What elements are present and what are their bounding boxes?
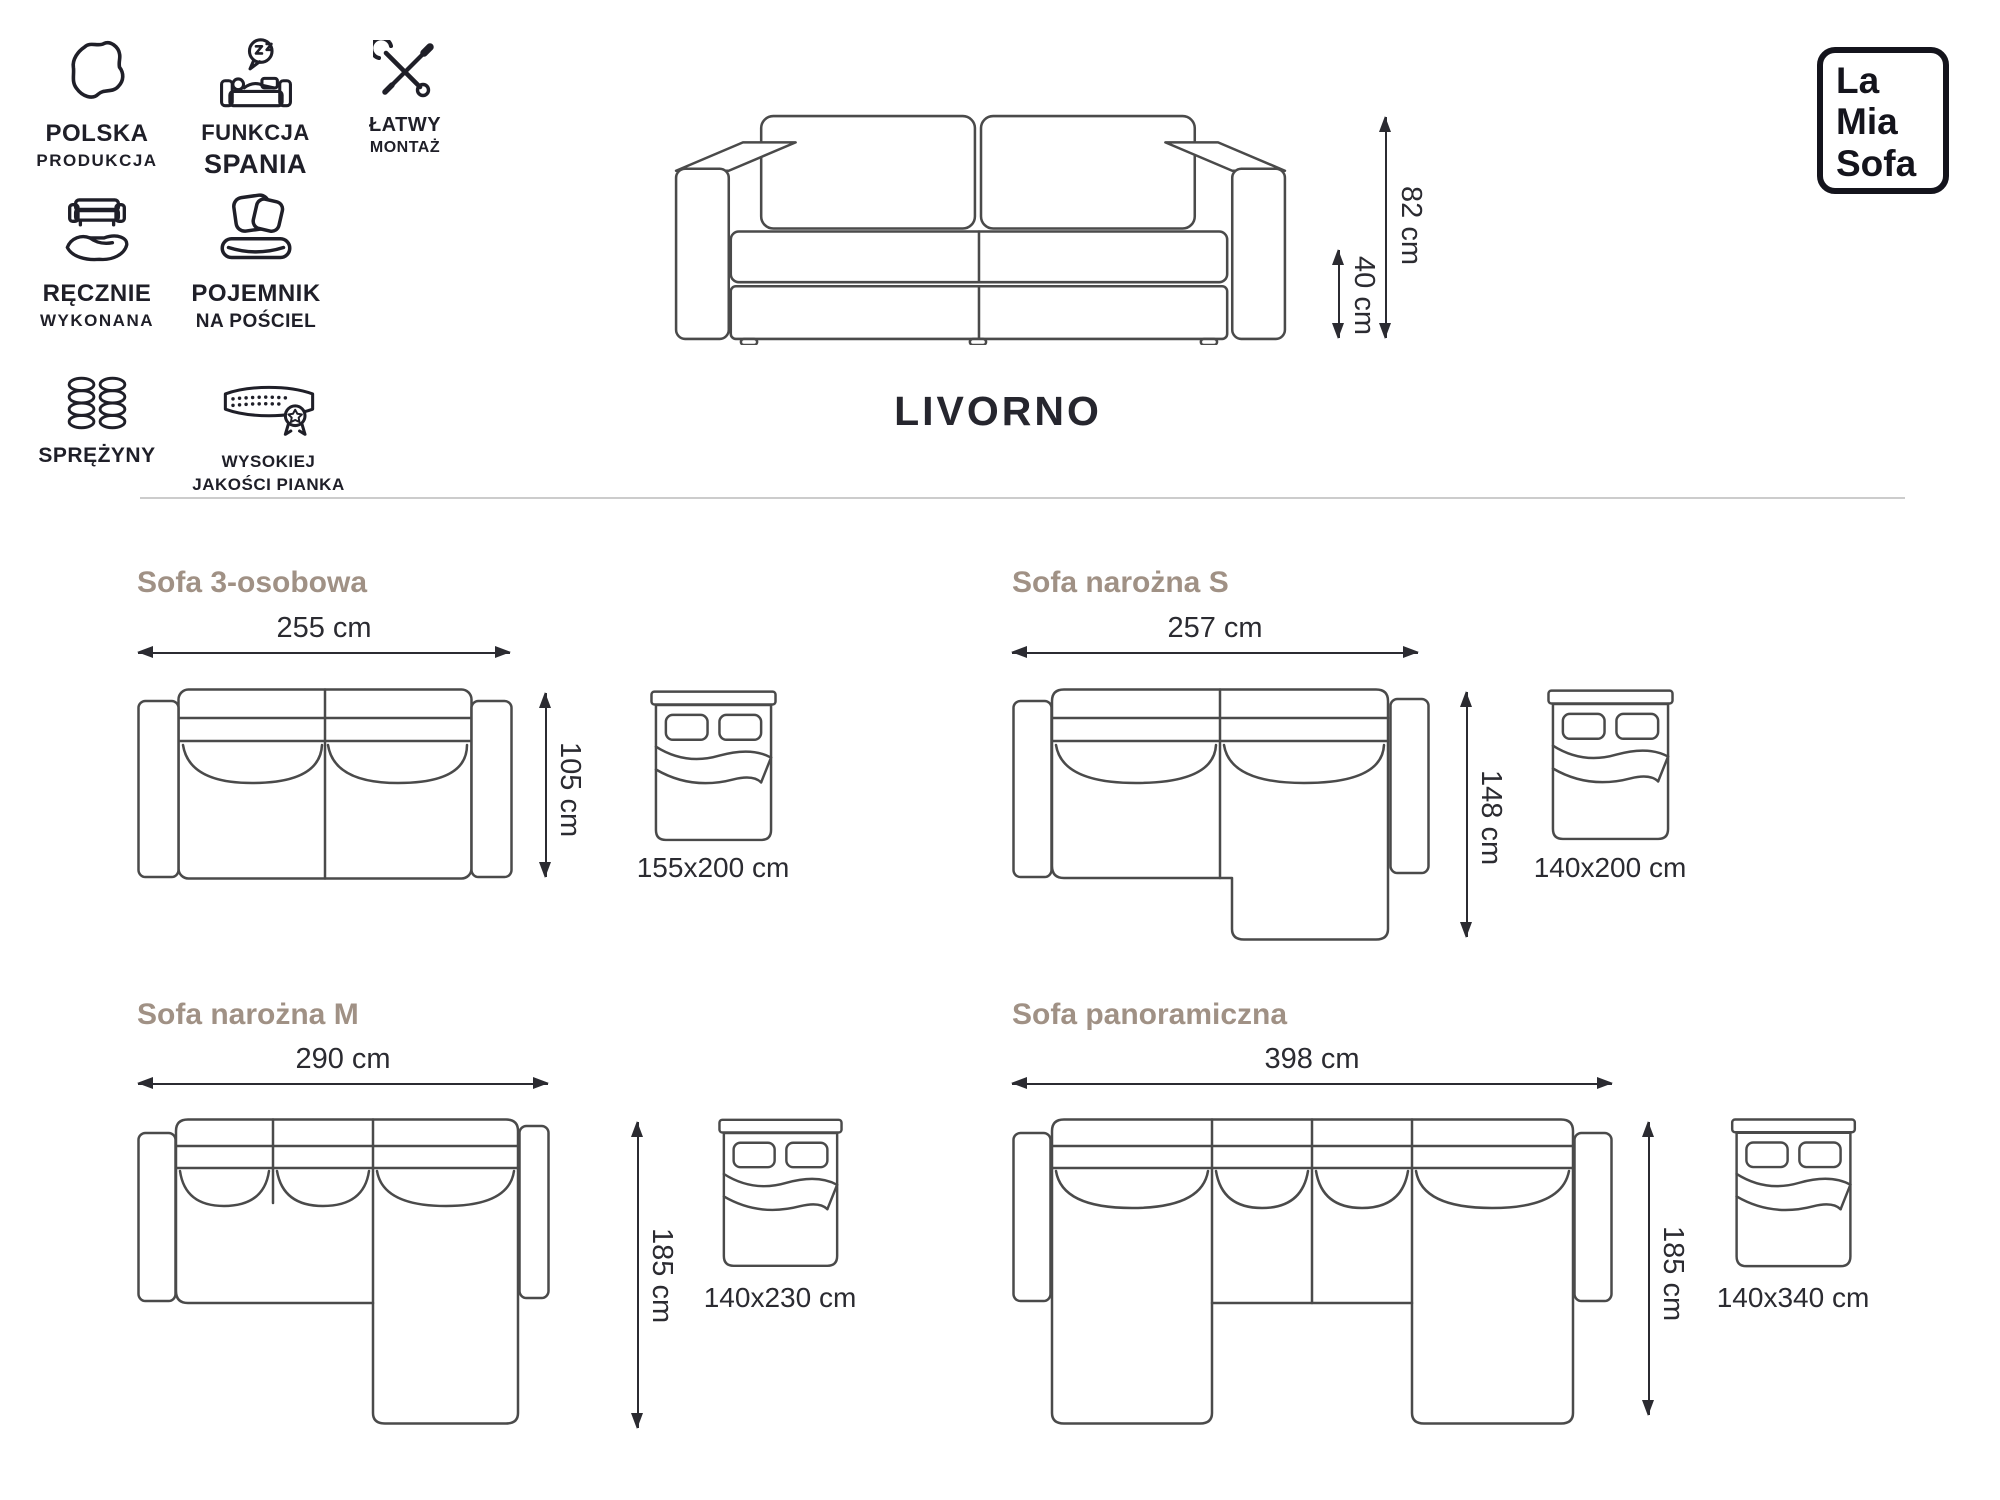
feature-title: RĘCZNIE bbox=[43, 280, 152, 308]
variant-4-name: Sofa panoramiczna bbox=[1012, 998, 1287, 1032]
feature-title: SPRĘŻYNY bbox=[38, 444, 155, 468]
variant-1-name: Sofa 3-osobowa bbox=[137, 566, 367, 600]
variant-4-bed-size: 140x340 cm bbox=[1717, 1282, 1870, 1314]
variant-1-width-arrow bbox=[138, 652, 510, 654]
feature-recznie-wykonana: RĘCZNIE WYKONANA bbox=[12, 194, 182, 331]
feature-wysokiej-jakosci-pianka: WYSOKIEJ JAKOŚCI PIANKA bbox=[156, 374, 381, 495]
variant-2-width-label: 257 cm bbox=[1167, 612, 1262, 645]
feature-polska-produkcja: POLSKA PRODUKCJA bbox=[12, 38, 182, 171]
bed-icon bbox=[1547, 689, 1674, 846]
sleep-function-icon bbox=[218, 38, 294, 114]
feature-subtitle: PRODUKCJA bbox=[36, 151, 157, 171]
easy-assembly-icon bbox=[373, 40, 437, 104]
variant-3-width-arrow bbox=[138, 1083, 548, 1085]
variant-1-depth-label: 105 cm bbox=[553, 742, 586, 837]
variant-1-depth-arrow bbox=[545, 693, 547, 877]
variant-2-depth-arrow bbox=[1466, 692, 1468, 937]
brand-line-3: Sofa bbox=[1836, 143, 1943, 184]
variant-3-bed-size: 140x230 cm bbox=[704, 1282, 857, 1314]
feature-latwy-montaz: ŁATWY MONTAŻ bbox=[325, 40, 485, 157]
product-name: LIVORNO bbox=[894, 388, 1102, 435]
total-height-arrow bbox=[1385, 117, 1387, 338]
sofa-top-view-narozna-m bbox=[137, 1118, 550, 1425]
feature-subtitle: WYKONANA bbox=[40, 311, 154, 331]
variant-3-depth-arrow bbox=[637, 1122, 639, 1428]
variant-4-depth-arrow bbox=[1648, 1122, 1650, 1415]
variant-4-width-arrow bbox=[1012, 1083, 1612, 1085]
quality-foam-icon bbox=[221, 374, 317, 440]
brand-line-1: La bbox=[1836, 60, 1943, 101]
feature-subtitle: MONTAŻ bbox=[370, 138, 440, 157]
feature-subtitle: JAKOŚCI PIANKA bbox=[192, 475, 344, 495]
feature-title: ŁATWY bbox=[369, 114, 441, 137]
feature-title: POLSKA bbox=[45, 120, 148, 148]
sofa-front-view bbox=[673, 112, 1288, 345]
brand-line-2: Mia bbox=[1836, 101, 1943, 142]
sofa-top-view-panoramiczna bbox=[1012, 1118, 1613, 1425]
variant-2-depth-label: 148 cm bbox=[1474, 770, 1507, 865]
feature-funkcja-spania: FUNKCJA SPANIA bbox=[168, 38, 343, 181]
variant-2-name: Sofa narożna S bbox=[1012, 566, 1229, 600]
poland-map-icon bbox=[61, 38, 133, 110]
handmade-icon bbox=[59, 194, 135, 270]
variant-4-width-label: 398 cm bbox=[1264, 1043, 1359, 1076]
bed-icon bbox=[718, 1118, 843, 1273]
bed-icon bbox=[1730, 1118, 1857, 1273]
total-height-label: 82 cm bbox=[1394, 186, 1427, 265]
bedding-storage-icon bbox=[216, 190, 296, 270]
variant-3-width-label: 290 cm bbox=[295, 1043, 390, 1076]
variant-2-width-arrow bbox=[1012, 652, 1418, 654]
springs-icon bbox=[64, 372, 130, 434]
feature-subtitle: NA POŚCIEL bbox=[196, 311, 316, 334]
feature-subtitle: SPANIA bbox=[204, 148, 307, 180]
divider bbox=[140, 497, 1905, 499]
product-spec-sheet: POLSKA PRODUKCJA FUNKCJA SPANIA bbox=[0, 0, 2000, 1500]
variant-3-depth-label: 185 cm bbox=[645, 1228, 678, 1323]
seat-height-arrow bbox=[1338, 250, 1340, 338]
sofa-top-view-3-osobowa bbox=[137, 688, 513, 880]
variant-1-width-label: 255 cm bbox=[276, 612, 371, 645]
feature-title: FUNKCJA bbox=[201, 120, 310, 145]
sofa-top-view-narozna-s bbox=[1012, 688, 1430, 941]
variant-1-bed-size: 155x200 cm bbox=[637, 852, 790, 884]
feature-pojemnik-na-posciel: POJEMNIK NA POŚCIEL bbox=[166, 190, 346, 333]
feature-title: POJEMNIK bbox=[191, 280, 320, 308]
bed-icon bbox=[650, 690, 777, 847]
variant-4-depth-label: 185 cm bbox=[1656, 1226, 1689, 1321]
brand-logo: La Mia Sofa bbox=[1817, 47, 1949, 194]
seat-height-label: 40 cm bbox=[1347, 256, 1380, 335]
variant-2-bed-size: 140x200 cm bbox=[1534, 852, 1687, 884]
feature-title: WYSOKIEJ bbox=[222, 452, 316, 472]
variant-3-name: Sofa narożna M bbox=[137, 998, 359, 1032]
